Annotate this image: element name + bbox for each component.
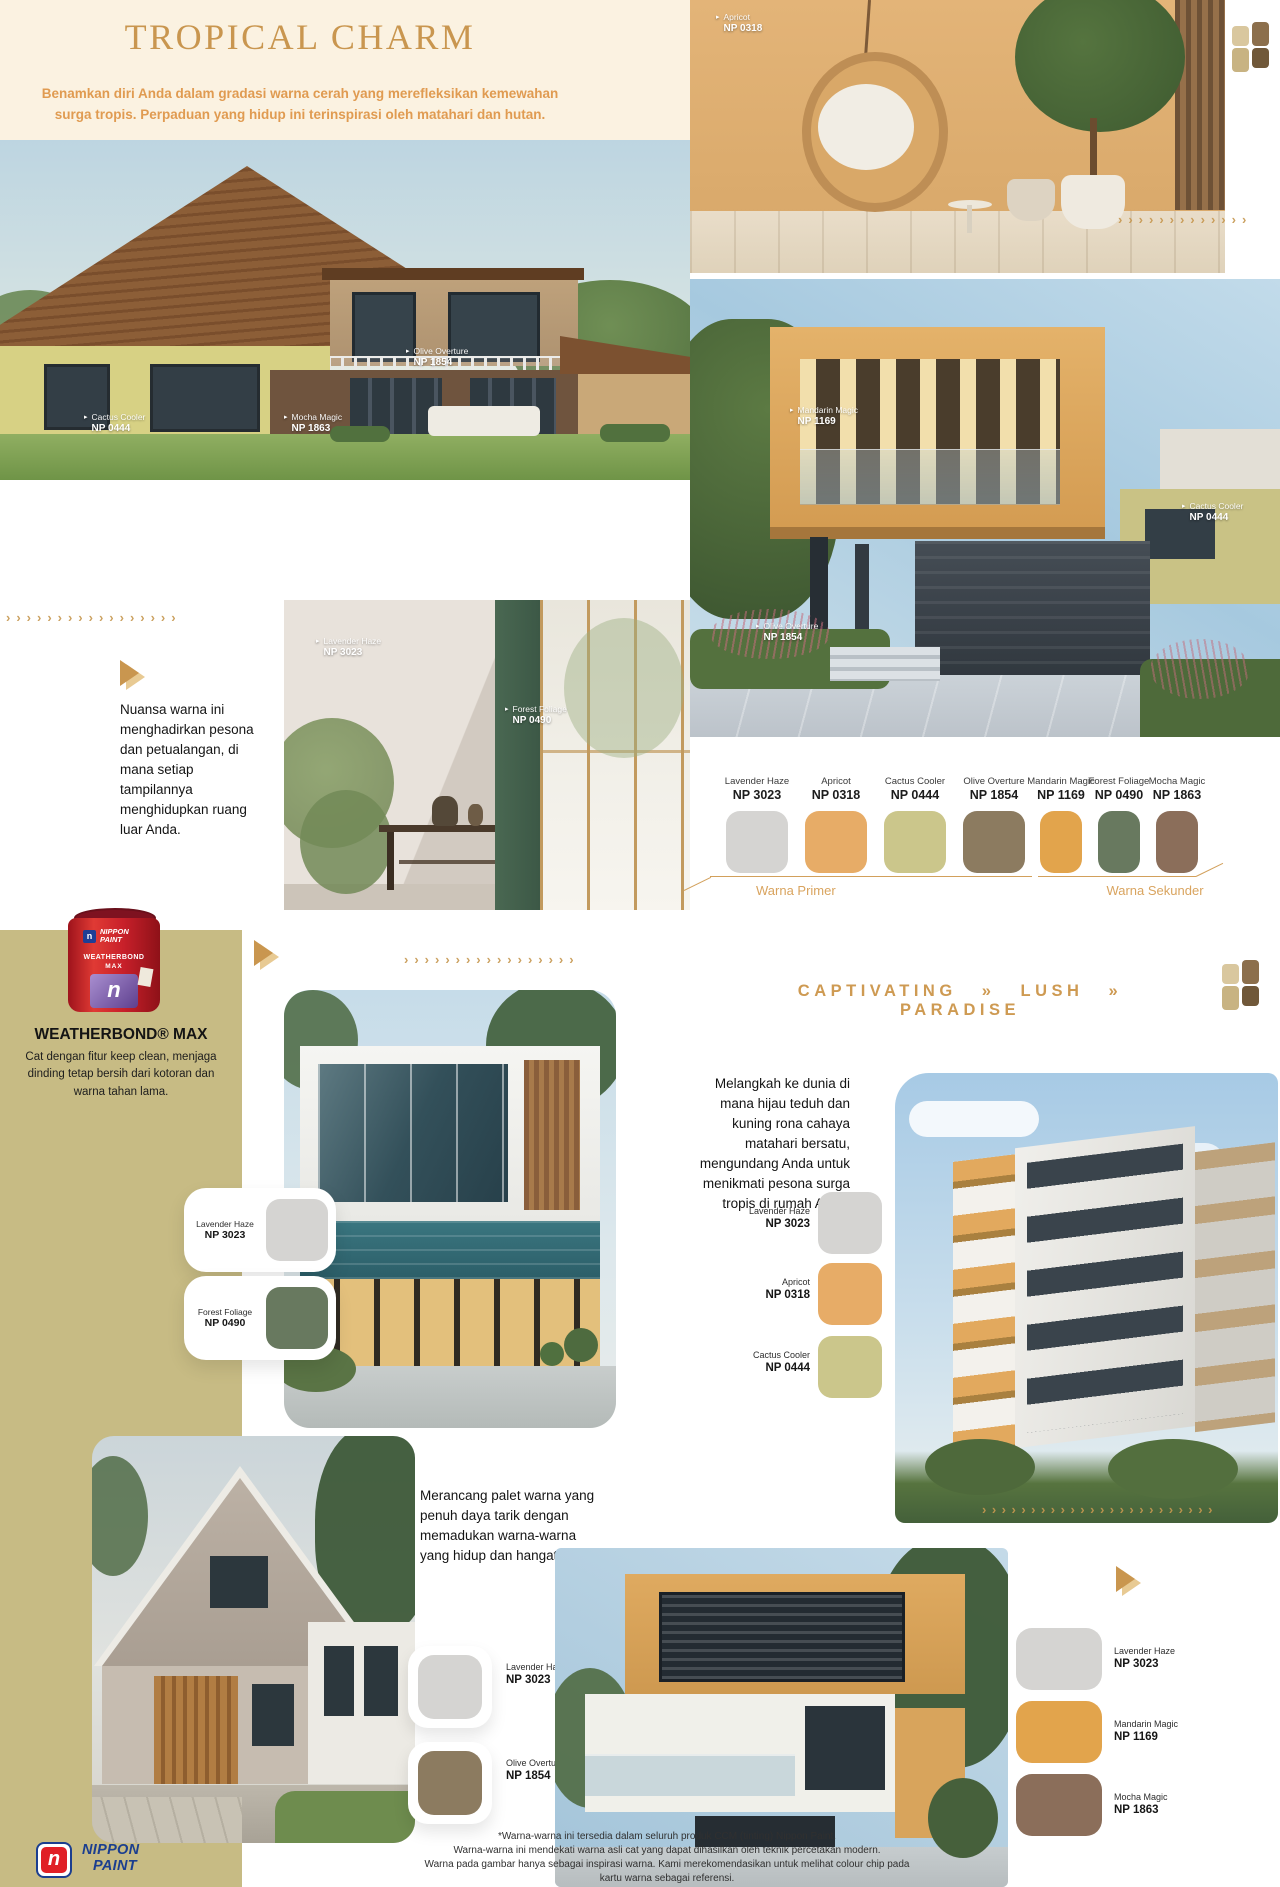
color-code: NP 3023 [716, 1218, 810, 1230]
disclaimer-line: Warna-warna ini mendekati warna asli cat… [300, 1844, 1034, 1858]
can-brand: NIPPONPAINT [100, 928, 129, 945]
color-name: Mocha Magic [1137, 776, 1217, 787]
color-code: NP 0444 [1190, 512, 1244, 524]
color-chip [1040, 811, 1082, 873]
glass-rail [800, 449, 1060, 505]
color-name: Cactus Cooler [92, 412, 146, 423]
color-chip [818, 1192, 882, 1254]
outdoor-sofa [428, 406, 540, 436]
can-logo-square: n [83, 930, 96, 943]
label-marker-icon: ▸ [756, 621, 760, 644]
steps [830, 647, 940, 681]
color-code: NP 1863 [1137, 788, 1217, 802]
color-code: NP 0318 [792, 788, 880, 802]
nippon-paint-logo: n NIPPONPAINT [36, 1842, 206, 1882]
color-name: Apricot [716, 1277, 810, 1289]
color-chip [818, 1263, 882, 1325]
grid-square [1222, 964, 1239, 984]
chip-label: Apricot NP 0318 [716, 1277, 810, 1301]
green-panel [495, 600, 540, 910]
group-line-sekunder [1038, 876, 1196, 877]
color-chip [884, 811, 946, 873]
label-marker-icon: ▸ [284, 412, 288, 435]
color-name: Forest Foliage [513, 704, 567, 715]
topiary [540, 1342, 564, 1366]
color-name: Mandarin Magic [1114, 1719, 1178, 1731]
chevron-row: ››››››››››››› [1118, 212, 1252, 227]
palette-swatch: Mocha Magic NP 1863 [1137, 776, 1217, 873]
chip-label: Mocha Magic NP 1863 [1114, 1792, 1168, 1816]
color-chip [1016, 1628, 1102, 1690]
color-callout: Lavender Haze NP 3023 [184, 1188, 336, 1272]
chevron-row: ›››››››››››››››››››››››› [982, 1502, 1218, 1517]
window [324, 1646, 354, 1716]
window-rows [1027, 1144, 1183, 1433]
garage [915, 541, 1150, 676]
chip-label: Lavender Haze NP 3023 [716, 1206, 810, 1230]
brochure-page: TROPICAL CHARM Benamkan diri Anda dalam … [0, 0, 1280, 1887]
chip-label: Lavender Haze NP 3023 [1114, 1646, 1175, 1670]
photo-interior: ▸ Lavender Haze NP 3023 ▸ Forest Foliage… [284, 600, 690, 910]
color-code: NP 1863 [292, 423, 343, 435]
color-name: Cactus Cooler [1190, 501, 1244, 512]
color-name: Olive Overture [414, 346, 469, 357]
group-label-primer: Warna Primer [756, 883, 836, 898]
color-name: Cactus Cooler [716, 1350, 810, 1362]
chip-label: Mandarin Magic NP 1169 [1114, 1719, 1178, 1743]
disclaimer-text: *Warna-warna ini tersedia dalam seluruh … [300, 1830, 1034, 1886]
label-marker-icon: ▸ [1182, 501, 1186, 524]
window [252, 1684, 294, 1746]
apartment-building [935, 1116, 1278, 1488]
grid-square [1232, 48, 1249, 72]
dormer-roof [322, 268, 584, 280]
color-name: Mocha Magic [292, 412, 343, 423]
brand-grid-icon [1222, 960, 1262, 1010]
weatherbond-body: Cat dengan fitur keep clean, menjaga din… [13, 1049, 229, 1101]
color-chip [1016, 1701, 1102, 1763]
color-chip [1016, 1774, 1102, 1836]
arrow-icon [120, 660, 150, 690]
balcony-glass [585, 1754, 795, 1796]
grid-square [1242, 986, 1259, 1006]
color-name: Cactus Cooler [871, 776, 959, 787]
color-name: Lavender Haze [324, 636, 382, 647]
label-marker-icon: ▸ [84, 412, 88, 435]
grid-square [1252, 22, 1269, 46]
disclaimer-line: *Warna-warna ini tersedia dalam seluruh … [300, 1830, 1034, 1844]
grid-square [1222, 986, 1239, 1010]
color-callout: Forest Foliage NP 0490 [184, 1276, 336, 1360]
color-chip [418, 1751, 482, 1815]
section-heading: CAPTIVATING » LUSH » PARADISE [740, 982, 1180, 1020]
bush [600, 424, 670, 442]
arrow-shape [120, 660, 139, 686]
color-name: Lavender Haze [716, 1206, 810, 1218]
color-name: Apricot [724, 12, 763, 23]
color-chip [963, 811, 1025, 873]
color-code: NP 0444 [716, 1362, 810, 1374]
slat-wall [1175, 0, 1225, 210]
color-chip [1098, 811, 1140, 873]
logo-wordmark: NIPPONPAINT [82, 1843, 139, 1875]
can-label-art: n [90, 974, 138, 1008]
color-name: Lavender Haze [184, 1219, 266, 1229]
chair-cushion [818, 84, 914, 170]
grid-square [1252, 48, 1269, 68]
arrow-icon [1116, 1566, 1146, 1596]
corner-window [318, 1064, 508, 1202]
color-name: Apricot [792, 776, 880, 787]
window [150, 364, 260, 432]
vase [432, 796, 458, 826]
color-code: NP 0318 [724, 23, 763, 35]
color-chip [726, 811, 788, 873]
arrow-icon [254, 940, 284, 970]
color-code: NP 1169 [1114, 1731, 1178, 1743]
pink-grass [1150, 639, 1250, 699]
paint-can: n NIPPONPAINT WEATHERBOND MAX n [68, 908, 160, 1012]
grid-square [1242, 960, 1259, 984]
arrow-shape [254, 940, 273, 966]
palette-swatch: Apricot NP 0318 [792, 776, 880, 873]
color-code: NP 3023 [1114, 1658, 1175, 1670]
side-wing [1195, 1142, 1275, 1432]
label-marker-icon: ▸ [406, 346, 410, 369]
photo-apartment [895, 1073, 1278, 1523]
palette-swatch: Lavender Haze NP 3023 [713, 776, 801, 873]
disclaimer-line: kartu warna sebagai referensi. [300, 1872, 1034, 1886]
plant-pot [1061, 175, 1125, 229]
brand-grid-icon [1232, 22, 1272, 72]
weatherbond-heading: WEATHERBOND® MAX [0, 1026, 242, 1044]
photo-house-modern: ▸ Mandarin Magic NP 1169 ▸ Cactus Cooler… [690, 279, 1280, 737]
grid-square [1232, 26, 1249, 46]
disclaimer-line: Warna pada gambar hanya sebagai inspiras… [300, 1858, 1034, 1872]
window-greenery [564, 618, 684, 758]
color-name: Lavender Haze [713, 776, 801, 787]
photo-house-gable: ▸ Cactus Cooler NP 0444 ▸ Mocha Magic NP… [0, 140, 690, 480]
vase [1007, 179, 1055, 221]
color-name: Forest Foliage [184, 1307, 266, 1317]
group-line-primer [710, 876, 1032, 877]
table-stem [967, 205, 972, 233]
color-code: NP 0490 [184, 1317, 266, 1329]
window [364, 1646, 398, 1716]
group-label-sekunder: Warna Sekunder [1100, 883, 1210, 898]
label-marker-icon: ▸ [505, 704, 509, 727]
photo-terrace: ▸ Apricot NP 0318 [690, 0, 1225, 273]
color-chip [805, 811, 867, 873]
color-name: Olive Overture [764, 621, 819, 632]
color-code: NP 0444 [92, 423, 146, 435]
color-chip [266, 1287, 328, 1349]
plant [300, 790, 392, 894]
label-marker-icon: ▸ [316, 636, 320, 659]
page-subtitle: Benamkan diri Anda dalam gradasi warna c… [30, 84, 570, 126]
bush [925, 1439, 1035, 1495]
window-band [659, 1592, 905, 1682]
color-chip [818, 1336, 882, 1398]
color-name: Mocha Magic [1114, 1792, 1168, 1804]
console-leg [387, 832, 394, 890]
chevron-row: ››››››››››››››››› [404, 952, 580, 967]
color-code: NP 3023 [713, 788, 801, 802]
color-code: NP 1169 [798, 416, 858, 428]
color-card [408, 1646, 492, 1728]
color-name: Mandarin Magic [798, 405, 858, 416]
color-code: NP 0490 [513, 715, 567, 727]
color-name: Lavender Haze [1114, 1646, 1175, 1658]
cloud [909, 1101, 1039, 1137]
color-code: NP 3023 [324, 647, 382, 659]
label-marker-icon: ▸ [790, 405, 794, 428]
photo-house-aframe [92, 1436, 415, 1843]
gable-window [210, 1556, 268, 1608]
color-chip [1156, 811, 1198, 873]
label-marker-icon: ▸ [716, 12, 720, 35]
vase [468, 804, 483, 826]
floor [284, 884, 519, 910]
topiary [564, 1328, 598, 1362]
path [92, 1797, 242, 1843]
color-code: NP 0444 [871, 788, 959, 802]
wood-door [154, 1676, 238, 1784]
logo-frame: n [36, 1842, 72, 1878]
chip-label: Cactus Cooler NP 0444 [716, 1350, 810, 1374]
wood-slats [524, 1060, 580, 1210]
teal-band [300, 1221, 600, 1279]
logo-n-icon: n [41, 1847, 67, 1873]
bush [1108, 1439, 1238, 1499]
color-chip [418, 1655, 482, 1719]
color-code: NP 1854 [414, 357, 469, 369]
paragraph-outdoor: Nuansa warna ini menghadirkan pesona dan… [120, 700, 262, 840]
color-code: NP 1854 [764, 632, 819, 644]
color-code: NP 3023 [184, 1229, 266, 1241]
color-card [408, 1742, 492, 1824]
chevron-row: ››››››››››››››››› [6, 610, 182, 625]
palette-swatch: Cactus Cooler NP 0444 [871, 776, 959, 873]
can-product: WEATHERBOND [68, 954, 160, 961]
balconies [953, 1154, 1015, 1454]
color-code: NP 1863 [1114, 1804, 1168, 1816]
arrow-shape [1116, 1566, 1135, 1592]
window [805, 1706, 885, 1790]
color-chip [266, 1199, 328, 1261]
page-title: TROPICAL CHARM [0, 16, 600, 58]
color-code: NP 0318 [716, 1289, 810, 1301]
